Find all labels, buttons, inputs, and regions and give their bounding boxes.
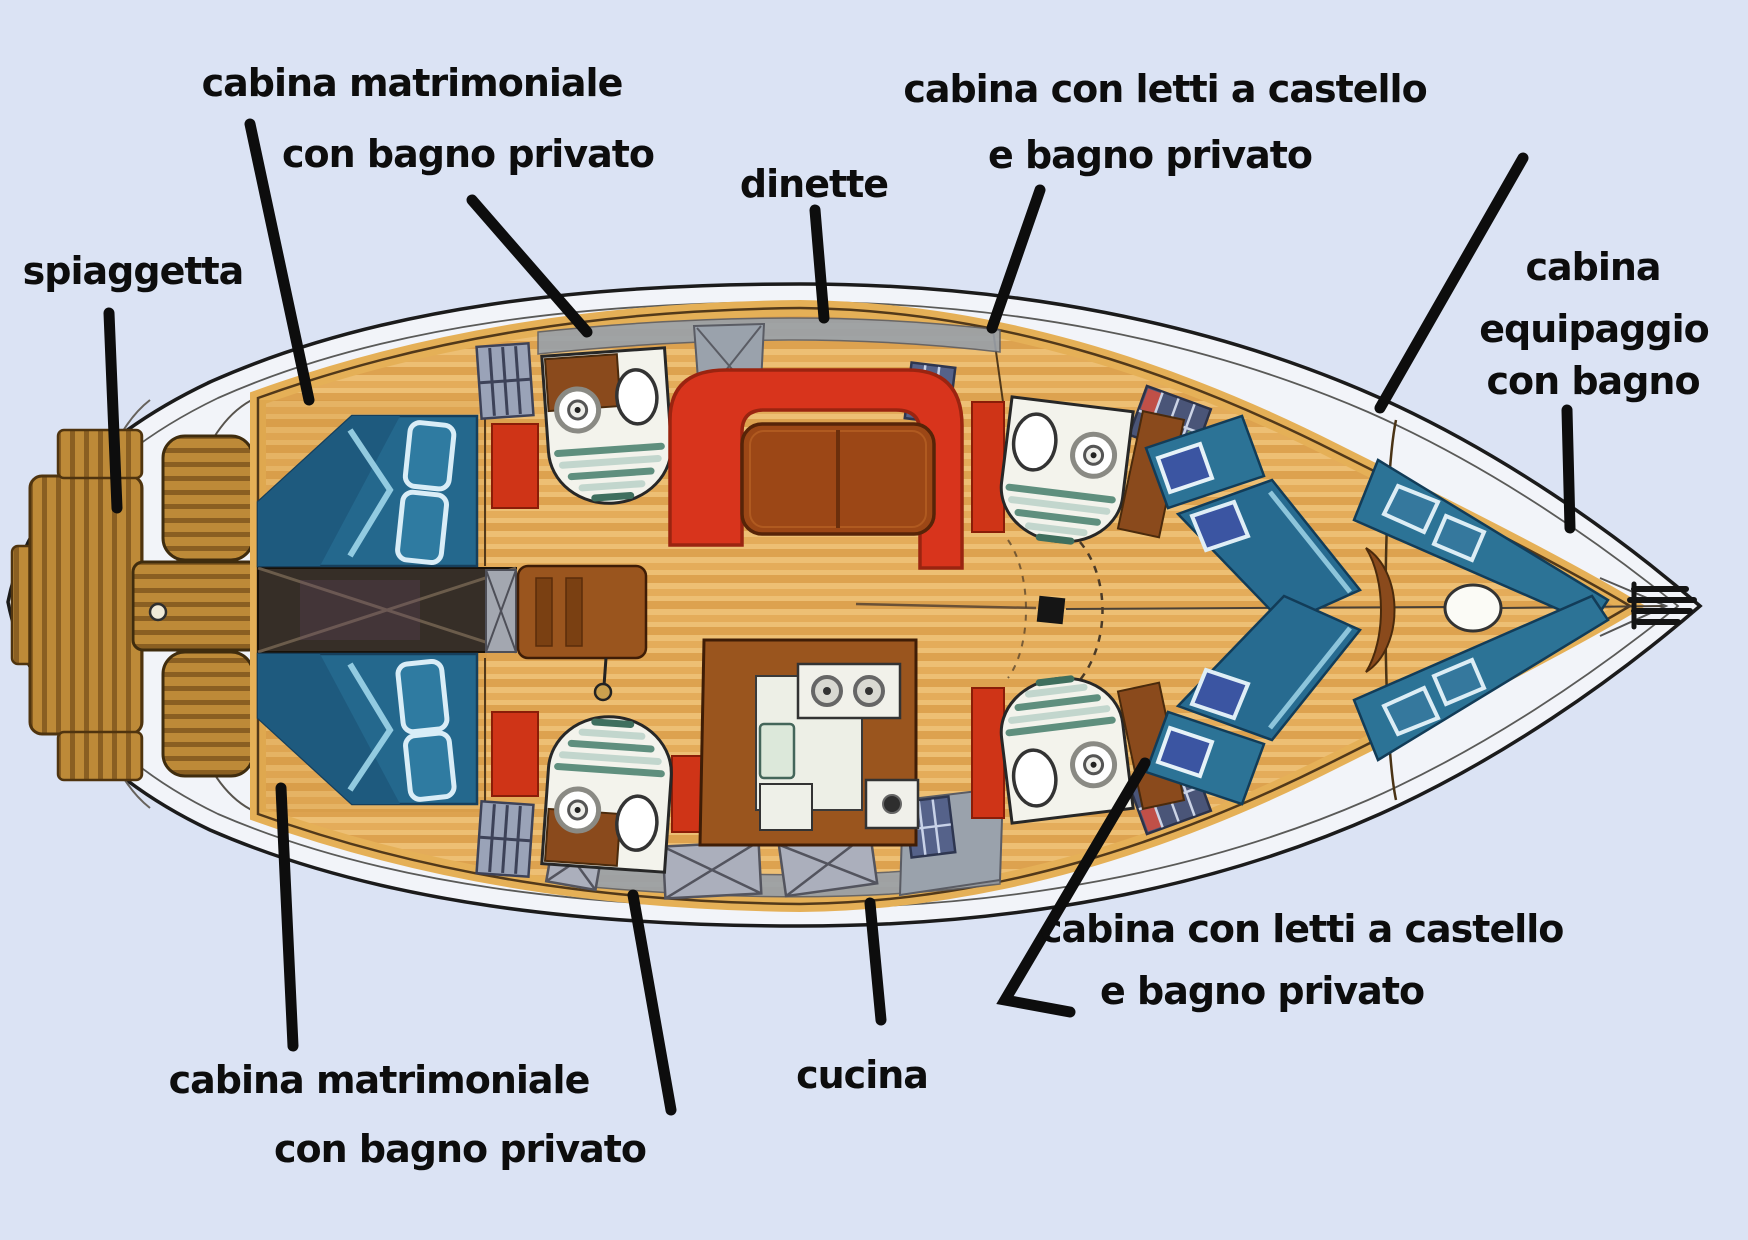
label-crew-1: cabina <box>1525 246 1660 290</box>
center-corridor <box>258 568 530 652</box>
label-crew-2: equipaggio <box>1479 308 1708 352</box>
label-bunk-bottom-2: e bagno privato <box>1100 970 1424 1014</box>
label-spiaggetta: spiaggetta <box>23 250 244 294</box>
galley <box>700 640 918 845</box>
label-bunk-bottom-1: cabina con letti a castello <box>1040 908 1563 952</box>
label-matrimoniale-bottom-2: con bagno privato <box>274 1128 646 1172</box>
label-crew-3: con bagno <box>1486 360 1699 404</box>
label-bunk-top-1: cabina con letti a castello <box>903 68 1426 112</box>
label-dinette: dinette <box>740 163 888 207</box>
dinette-table <box>742 424 934 534</box>
label-bunk-top-2: e bagno privato <box>988 134 1312 178</box>
yacht-floorplan: spiaggetta cabina matrimoniale con bagno… <box>0 0 1748 1240</box>
bathroom-aft-bottom <box>542 713 675 873</box>
label-matrimoniale-bottom-1: cabina matrimoniale <box>169 1059 590 1103</box>
leader-crew-cabin <box>1567 410 1570 528</box>
label-matrimoniale-top-1: cabina matrimoniale <box>202 62 623 106</box>
label-matrimoniale-top-2: con bagno privato <box>282 133 654 177</box>
bathroom-aft-top <box>542 348 675 508</box>
swim-platform <box>12 430 142 780</box>
leader-matrimoniale-bottom-bath <box>633 895 671 1110</box>
label-cucina: cucina <box>796 1054 928 1098</box>
